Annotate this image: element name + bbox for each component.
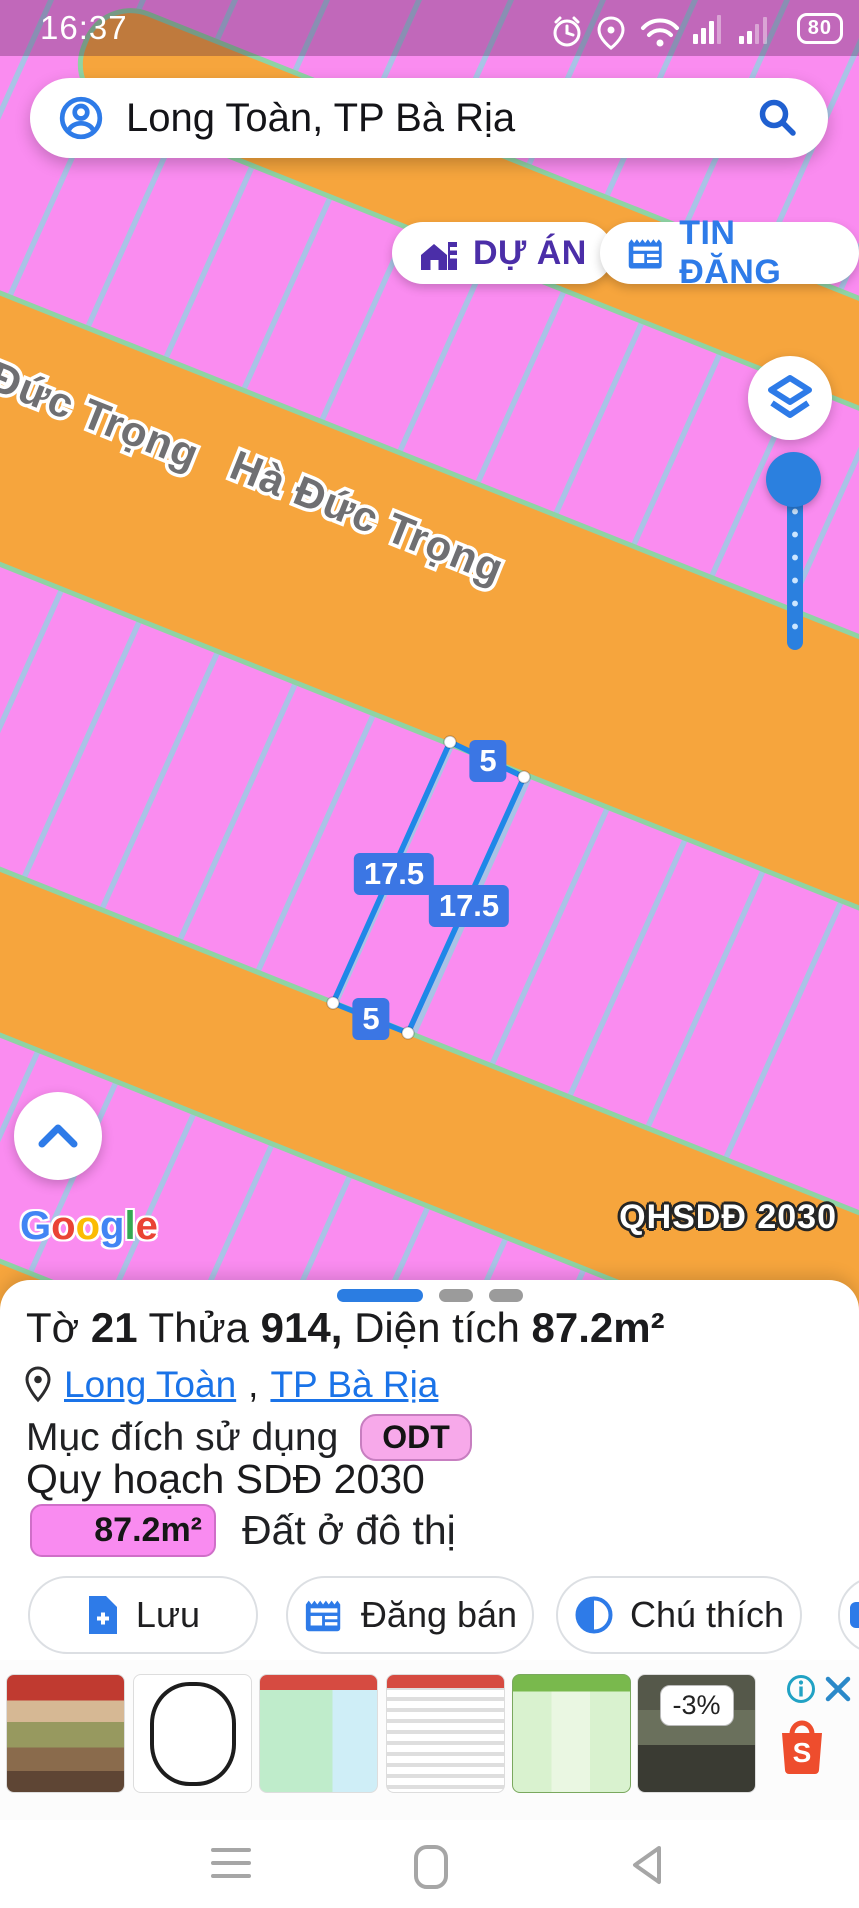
svg-text:S: S (793, 1737, 812, 1768)
zoom-slider-knob[interactable] (766, 452, 821, 507)
ad-thumbnail[interactable] (512, 1674, 631, 1793)
save-button[interactable]: Lưu (28, 1576, 258, 1654)
google-letter: e (136, 1204, 158, 1248)
ad-close-icon[interactable] (823, 1674, 853, 1704)
map-pin-icon (24, 1365, 52, 1405)
more-action-button[interactable] (838, 1576, 859, 1654)
dimension-label-top: 5 (469, 740, 506, 782)
page-dot[interactable] (489, 1289, 523, 1302)
phone-screen: Đức Trọng Hà Đức Trọng 5 17.5 17.5 5 16:… (0, 0, 859, 1908)
legend-button[interactable]: Chú thích (556, 1576, 802, 1654)
recents-menu-button[interactable] (210, 1844, 252, 1882)
zoom-slider-dots (787, 500, 803, 642)
parcel-title: Tờ 21 Thửa 914, Diện tích 87.2m² (26, 1304, 665, 1352)
search-input[interactable]: Long Toàn, TP Bà Rịa (126, 96, 734, 141)
location-separator: , (248, 1364, 258, 1406)
contrast-icon (574, 1595, 614, 1635)
back-button[interactable] (630, 1844, 664, 1886)
search-bar[interactable]: Long Toàn, TP Bà Rịa (30, 78, 828, 158)
ad-banner[interactable]: -3% S (0, 1660, 859, 1820)
outline-shape (150, 1682, 236, 1786)
plan-year-badge: QHSDĐ 2030 (619, 1198, 837, 1237)
save-label: Lưu (136, 1594, 200, 1636)
location-icon (599, 18, 623, 48)
save-doc-icon (86, 1594, 120, 1636)
ad-thumbnail[interactable] (259, 1674, 378, 1793)
bottom-sheet: Tờ 21 Thửa 914, Diện tích 87.2m² Long To… (0, 1280, 859, 1908)
account-icon[interactable] (58, 95, 104, 141)
signal-bars-icon (693, 15, 721, 44)
land-use-code-badge: ODT (360, 1414, 472, 1461)
battery-indicator: 80 (797, 13, 843, 44)
location-row: Long Toàn , TP Bà Rịa (24, 1364, 438, 1406)
area-row: 87.2m² Đất ở đô thị (30, 1504, 456, 1557)
page-dot[interactable] (439, 1289, 473, 1302)
plan-title: Quy hoạch SDĐ 2030 (26, 1456, 425, 1503)
purpose-row: Mục đích sử dụng ODT (26, 1414, 472, 1461)
ad-info-icon[interactable] (786, 1674, 816, 1704)
sell-news-icon (303, 1595, 345, 1635)
status-icons (547, 6, 785, 50)
wifi-icon (643, 20, 677, 46)
more-action-icon (846, 1598, 859, 1632)
signal-bars2-icon (739, 17, 767, 44)
clock-time: 16:37 (40, 9, 128, 47)
area-value-chip: 87.2m² (30, 1504, 216, 1557)
ward-link[interactable]: Long Toàn (64, 1364, 236, 1406)
google-letter: G (20, 1204, 51, 1248)
ad-thumbnail[interactable] (133, 1674, 252, 1793)
google-letter: o (76, 1204, 100, 1248)
dimension-label-bottom: 5 (352, 998, 389, 1040)
search-icon[interactable] (756, 96, 800, 140)
google-logo: Google (20, 1204, 158, 1249)
tin-dang-label: TIN ĐĂNG (679, 214, 833, 292)
cadastral-map[interactable]: Đức Trọng Hà Đức Trọng (0, 0, 859, 1345)
home-button[interactable] (412, 1844, 450, 1890)
legend-label: Chú thích (630, 1594, 784, 1636)
google-letter: g (100, 1204, 124, 1248)
collapse-up-button[interactable] (14, 1092, 102, 1180)
ad-thumbnail[interactable]: -3% (637, 1674, 756, 1793)
city-link[interactable]: TP Bà Rịa (270, 1364, 438, 1406)
dimension-label-right: 17.5 (429, 885, 509, 927)
du-an-button[interactable]: DỰ ÁN (392, 222, 613, 284)
status-bar: 16:37 (0, 0, 859, 56)
sell-label: Đăng bán (361, 1594, 517, 1636)
dimension-label-left: 17.5 (354, 853, 434, 895)
ad-thumbnail[interactable] (386, 1674, 505, 1793)
discount-badge: -3% (659, 1685, 733, 1726)
layers-button[interactable] (748, 356, 832, 440)
google-letter: o (51, 1204, 75, 1248)
project-house-icon (418, 233, 460, 273)
chevron-up-icon (36, 1122, 80, 1150)
android-nav-bar (0, 1820, 859, 1908)
sell-button[interactable]: Đăng bán (286, 1576, 534, 1654)
shopee-logo[interactable]: S (776, 1718, 828, 1776)
google-letter: l (124, 1204, 135, 1248)
land-type-label: Đất ở đô thị (242, 1507, 456, 1554)
page-dot-active[interactable] (337, 1289, 423, 1302)
layers-icon (764, 372, 816, 424)
alarm-icon (555, 18, 579, 45)
du-an-label: DỰ ÁN (473, 234, 587, 273)
ad-thumbnail[interactable] (6, 1674, 125, 1793)
listing-news-icon (626, 233, 666, 273)
pagination-dots[interactable] (0, 1289, 859, 1302)
tin-dang-button[interactable]: TIN ĐĂNG (600, 222, 859, 284)
purpose-label: Mục đích sử dụng (26, 1416, 338, 1460)
